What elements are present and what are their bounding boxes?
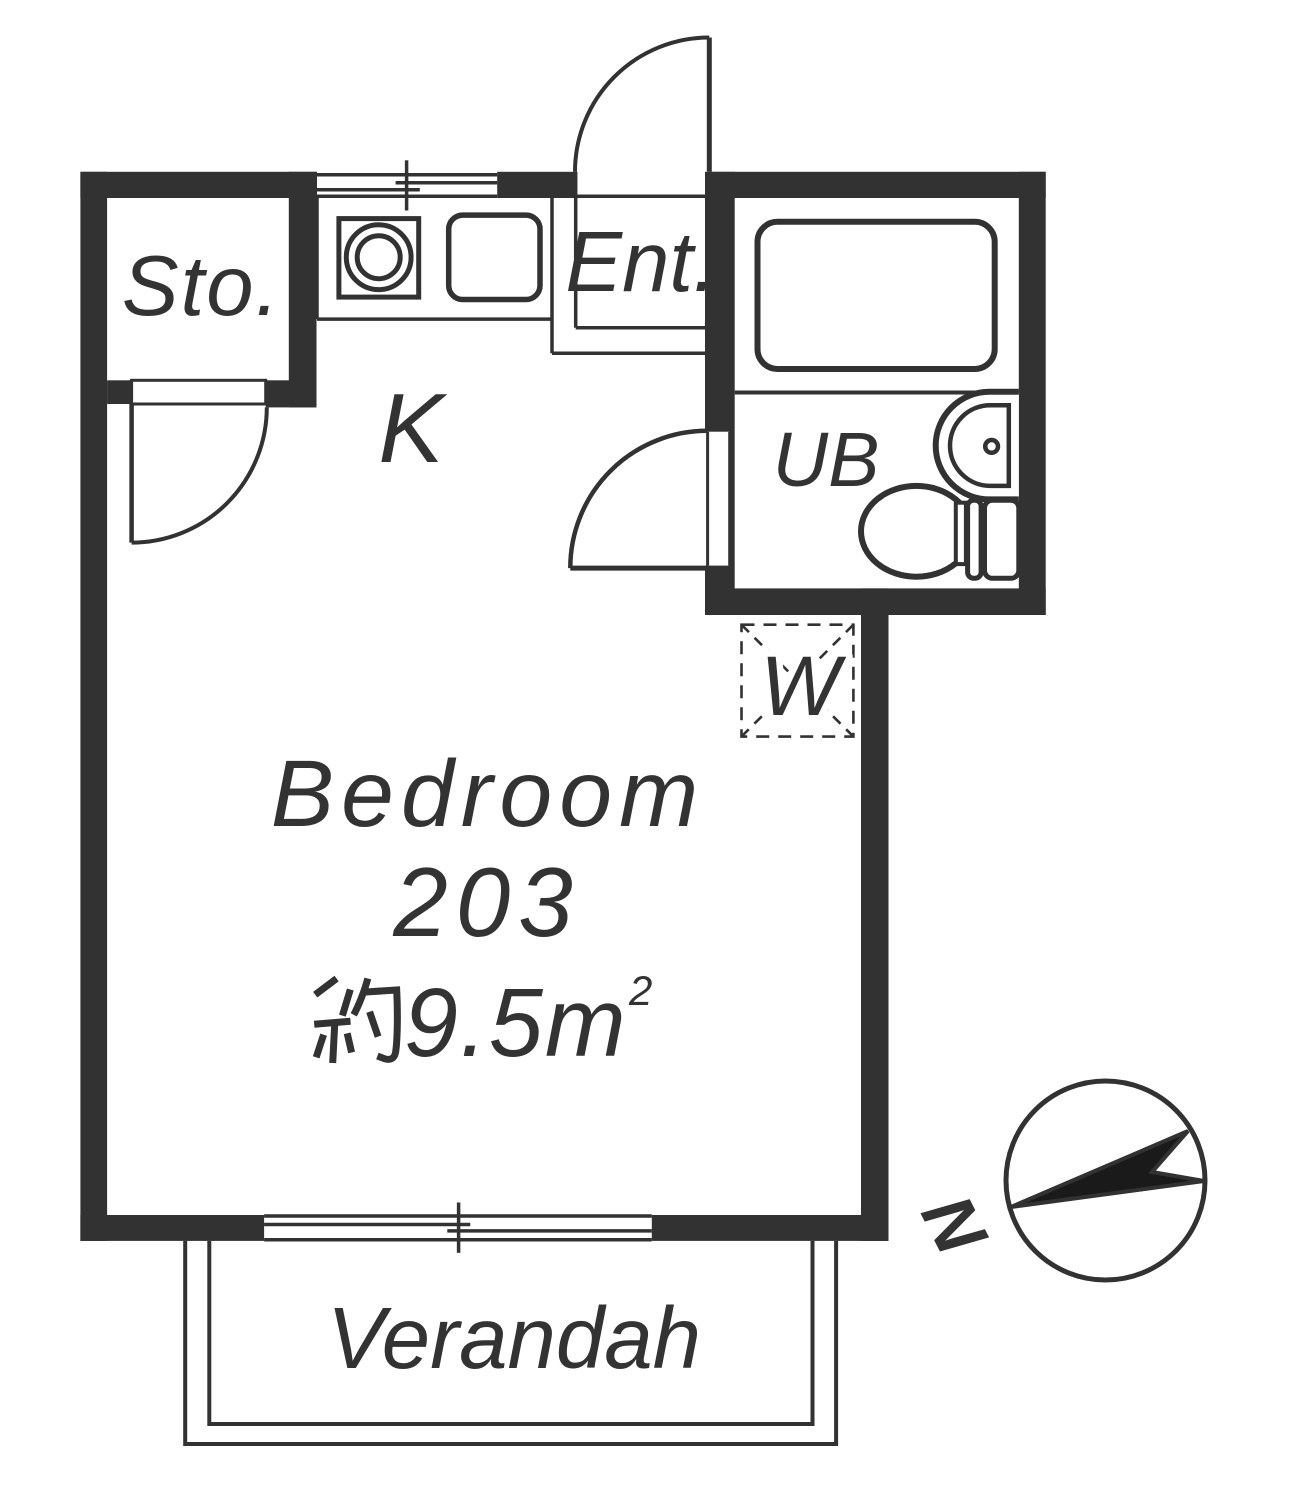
svg-text:203: 203 bbox=[392, 847, 581, 957]
svg-text:Bedroom: Bedroom bbox=[271, 741, 705, 847]
svg-text:UB: UB bbox=[773, 417, 880, 503]
svg-text:K: K bbox=[378, 373, 447, 483]
svg-text:Sto.: Sto. bbox=[122, 239, 281, 334]
svg-text:2: 2 bbox=[628, 967, 652, 1014]
svg-text:9.5m: 9.5m bbox=[404, 968, 628, 1077]
svg-text:W: W bbox=[760, 639, 846, 733]
svg-text:Ent.: Ent. bbox=[565, 215, 716, 310]
svg-text:Verandah: Verandah bbox=[327, 1290, 701, 1387]
